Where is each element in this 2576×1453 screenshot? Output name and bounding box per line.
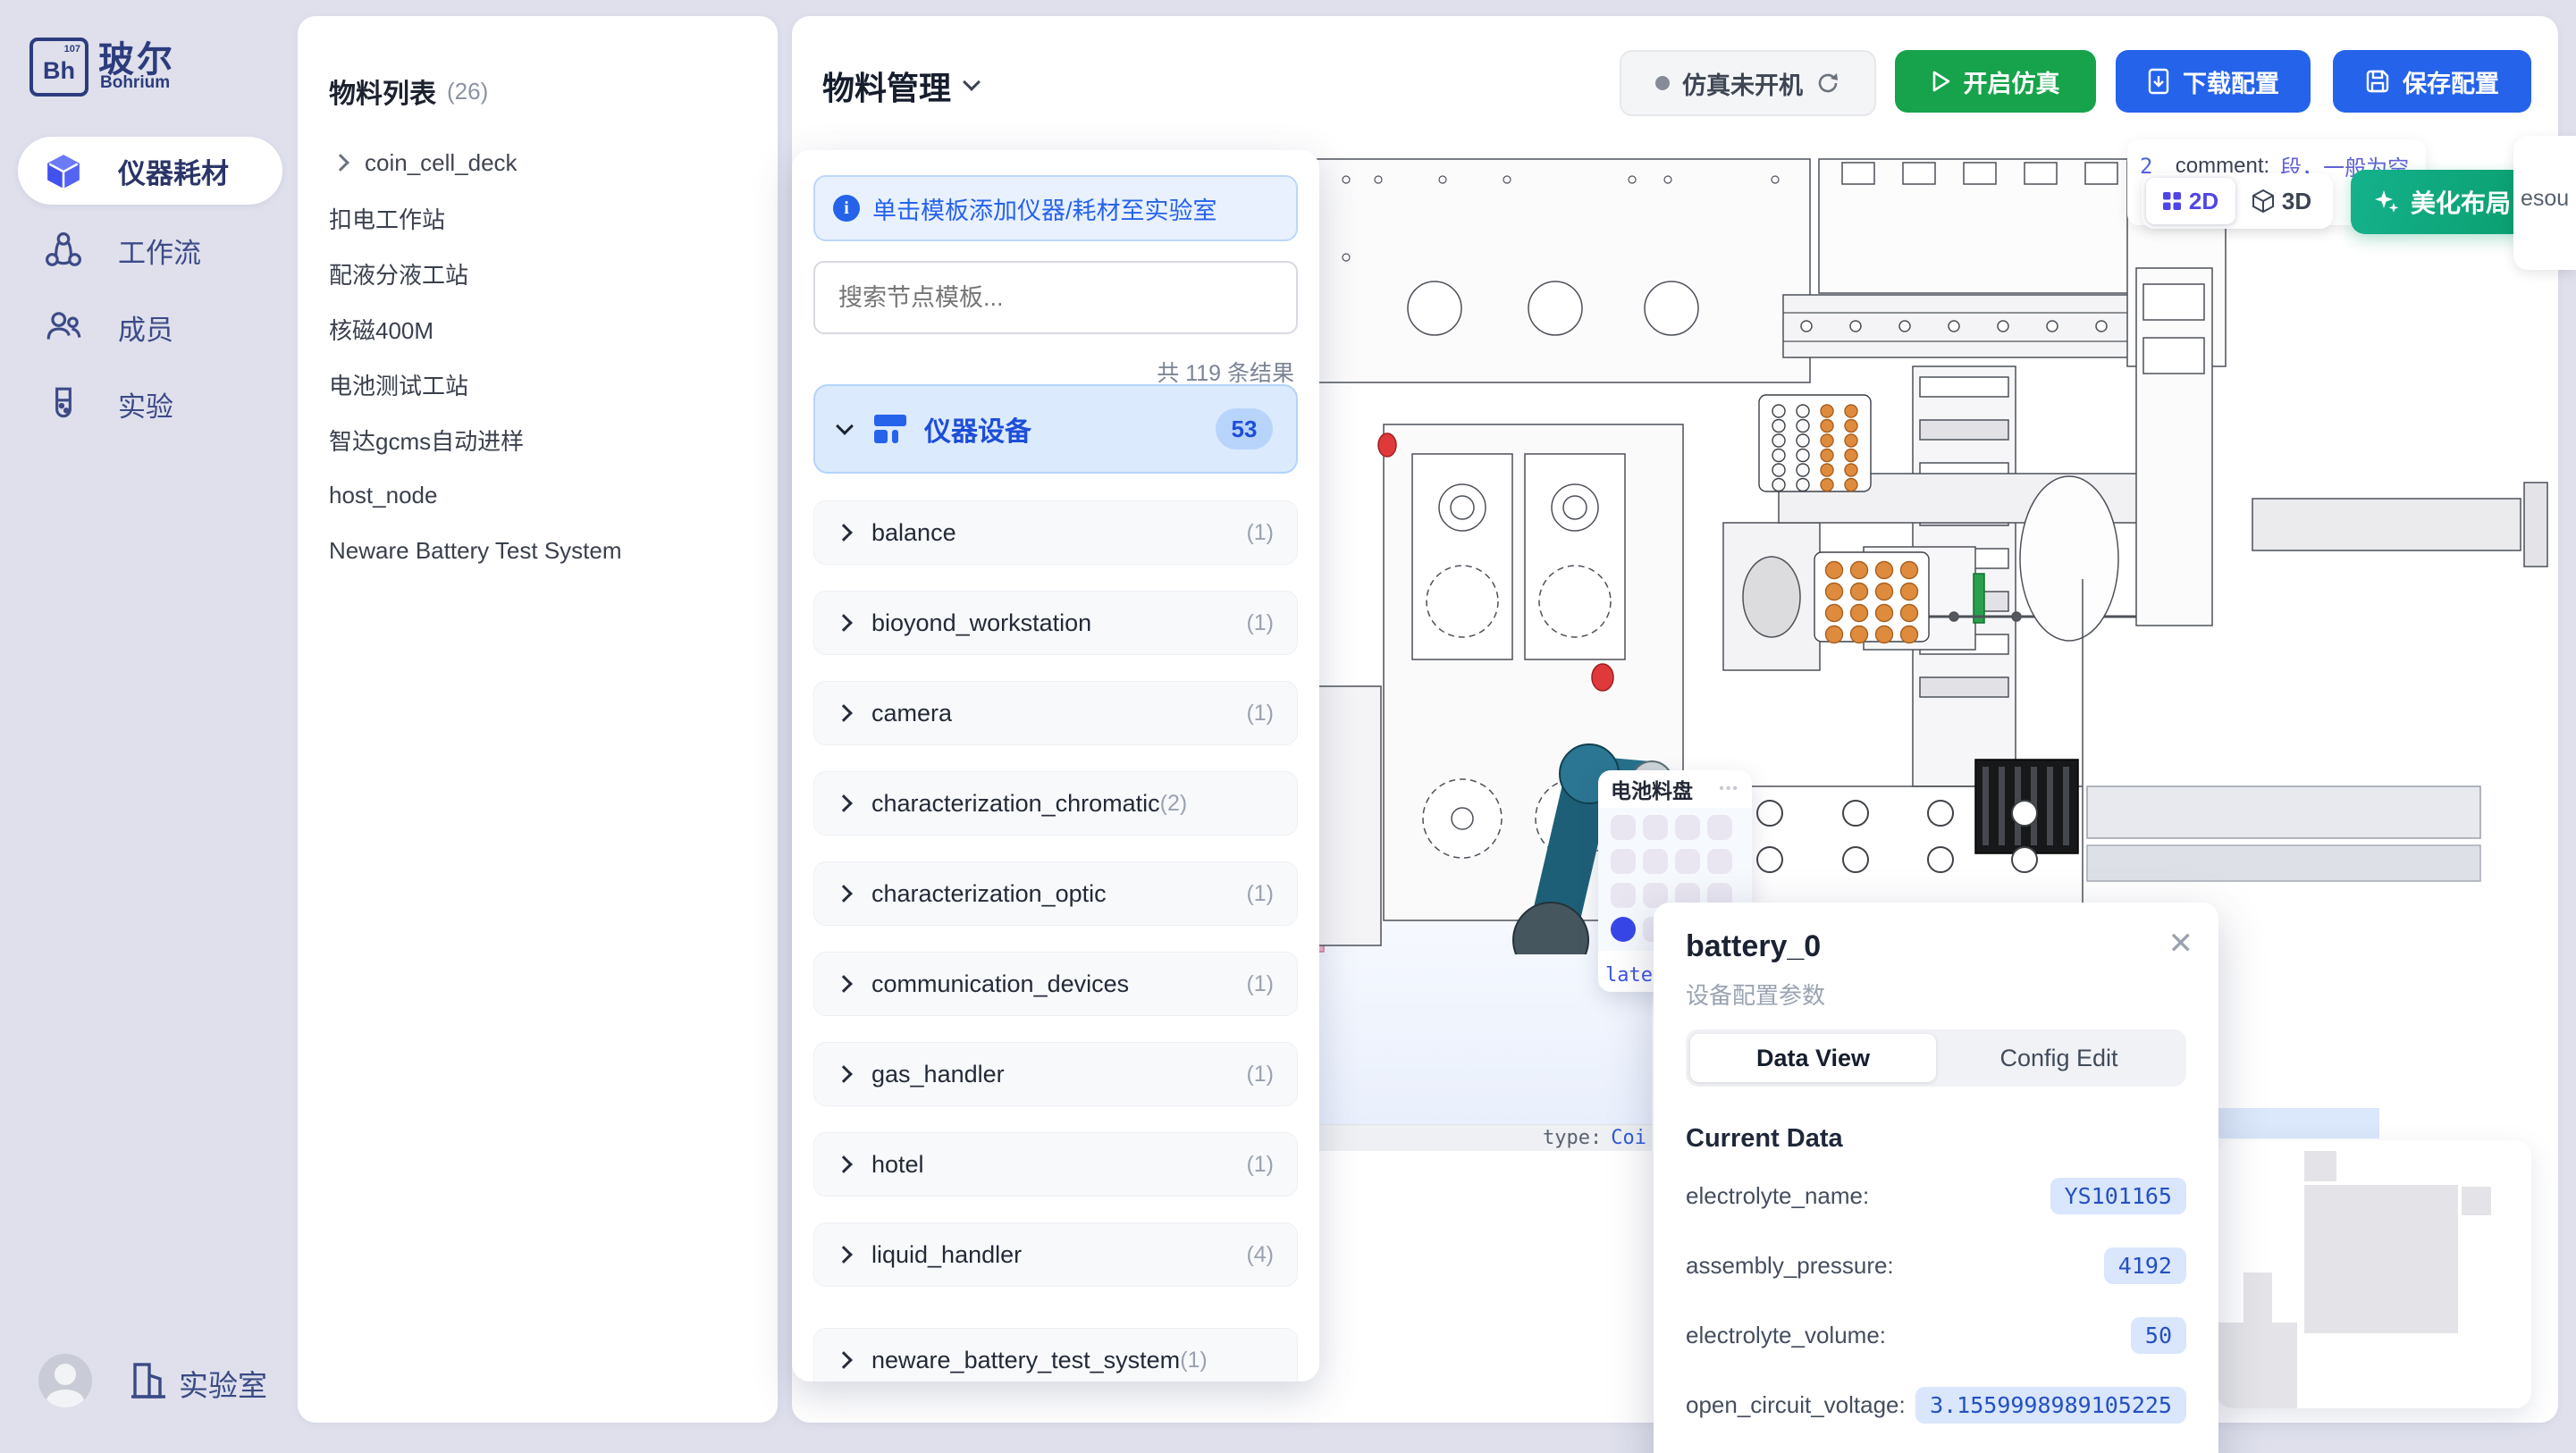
clipped-right-text: esou	[2521, 186, 2569, 212]
page-title: 物料管理	[822, 63, 951, 109]
plate-card-title: 电池料盘	[1611, 774, 1693, 804]
sim-status-label: 仿真未开机	[1682, 66, 1803, 101]
sidebar: Bh 107 玻尔 Bohrium 仪器耗材 工作流	[0, 0, 295, 1453]
plate-slot[interactable]	[1675, 815, 1700, 840]
test-tube-icon	[45, 385, 82, 423]
plate-slot[interactable]	[1707, 815, 1732, 840]
download-config-button[interactable]: 下载配置	[2116, 50, 2311, 113]
grid-2d-icon	[2163, 192, 2181, 210]
group-label: 仪器设备	[924, 409, 1031, 449]
sidebar-item-label: 工作流	[118, 231, 201, 271]
field-electrolyte-name: electrolyte_name: YS101165	[1686, 1176, 2186, 1215]
material-item-coin-cell-deck[interactable]: coin_cell_deck	[329, 135, 740, 190]
start-simulation-label: 开启仿真	[1964, 64, 2060, 99]
plate-slot[interactable]	[1643, 815, 1668, 840]
popup-fields: electrolyte_name: YS101165 assembly_pres…	[1686, 1176, 2186, 1453]
avatar-head	[55, 1364, 76, 1385]
search-input[interactable]	[813, 261, 1298, 334]
category-row-bioyond-workstation[interactable]: bioyond_workstation(1)	[813, 591, 1298, 655]
category-row-hotel[interactable]: hotel(1)	[813, 1132, 1298, 1197]
minimap-block	[2304, 1151, 2336, 1181]
tab-label: Config Edit	[1999, 1045, 2117, 1072]
popup-section-title: Current Data	[1686, 1124, 1843, 1154]
save-config-label: 保存配置	[2403, 64, 2499, 99]
minimap-block	[2218, 1323, 2297, 1408]
field-electrolyte-volume: electrolyte_volume: 50	[1686, 1315, 2186, 1355]
plate-slot[interactable]	[1611, 883, 1636, 908]
materials-title: 物料列表	[329, 71, 436, 111]
result-count: 共 119 条结果	[1157, 356, 1294, 388]
beautify-layout-label: 美化布局	[2411, 184, 2511, 220]
field-open-circuit-voltage: open_circuit_voltage: 3.1559998989105225	[1686, 1385, 2186, 1424]
lab-switcher[interactable]: 实验室	[179, 1362, 267, 1405]
toggle-3d[interactable]: 3D	[2235, 178, 2328, 224]
info-banner: i 单击模板添加仪器/耗材至实验室	[813, 175, 1298, 241]
category-row-balance[interactable]: balance(1)	[813, 500, 1298, 565]
workflow-icon	[45, 231, 82, 269]
sidebar-item-experiments[interactable]: 实验	[18, 375, 282, 433]
info-icon: i	[833, 195, 860, 222]
sidebar-item-label: 仪器耗材	[118, 151, 229, 191]
popup-tabs: Data View Config Edit	[1686, 1029, 2186, 1087]
tab-config-edit[interactable]: Config Edit	[1936, 1034, 2182, 1082]
sidebar-item-instruments[interactable]: 仪器耗材	[18, 137, 282, 205]
material-item-label: coin_cell_deck	[365, 149, 518, 177]
toggle-3d-label: 3D	[2282, 188, 2311, 215]
tab-label: Data View	[1756, 1045, 1870, 1072]
start-simulation-button[interactable]: 开启仿真	[1895, 50, 2096, 113]
category-row-neware-battery-test-system[interactable]: neware_battery_test_system(1)	[813, 1328, 1298, 1382]
logo-box-sup: 107	[64, 44, 80, 55]
plate-slot[interactable]	[1675, 849, 1700, 874]
materials-panel: 物料列表 (26) coin_cell_deck 扣电工作站 配液分液工站 核磁…	[298, 16, 778, 1423]
save-config-button[interactable]: 保存配置	[2333, 50, 2531, 113]
beautify-layout-button[interactable]: 美化布局	[2351, 170, 2533, 234]
download-icon	[2147, 68, 2170, 95]
field-value: 3.1559998989105225	[1915, 1387, 2186, 1424]
minimap[interactable]	[2217, 1140, 2531, 1408]
plate-slot-occupied[interactable]	[1611, 917, 1636, 942]
material-item-label: 配液分液工站	[329, 257, 468, 290]
field-label: assembly_pressure:	[1686, 1252, 1894, 1280]
chevron-down-icon	[836, 417, 854, 435]
sidebar-item-label: 实验	[118, 384, 173, 424]
material-item-label: host_node	[329, 482, 437, 509]
cube-3d-icon	[2252, 189, 2274, 213]
field-value: 50	[2131, 1317, 2186, 1354]
popup-subtitle: 设备配置参数	[1686, 978, 1825, 1011]
minimap-block	[2243, 1272, 2272, 1324]
field-assembly-pressure: assembly_pressure: 4192	[1686, 1246, 2186, 1285]
field-label: open_circuit_voltage:	[1686, 1391, 1906, 1419]
building-icon	[128, 1359, 169, 1402]
toggle-2d[interactable]: 2D	[2146, 178, 2235, 224]
sidebar-item-label: 成员	[118, 307, 173, 348]
material-item-label: 智达gcms自动进样	[329, 424, 524, 457]
popup-title: battery_0	[1686, 929, 1821, 964]
brand-subtitle: Bohrium	[100, 73, 170, 93]
tab-data-view[interactable]: Data View	[1690, 1034, 1936, 1082]
template-panel: i 单击模板添加仪器/耗材至实验室 共 119 条结果 仪器设备 53 bala…	[792, 150, 1319, 1382]
material-item-label: 核磁400M	[329, 313, 434, 346]
group-header-instruments[interactable]: 仪器设备 53	[813, 384, 1298, 474]
minimap-block	[2462, 1187, 2491, 1215]
category-row-characterization-optic[interactable]: characterization_optic(1)	[813, 861, 1298, 926]
view-mode-toggle: 2D 3D	[2142, 173, 2333, 229]
category-row-camera[interactable]: camera(1)	[813, 681, 1298, 745]
more-menu-icon[interactable]: •••	[1719, 781, 1739, 797]
device-config-popup: battery_0 ✕ 设备配置参数 Data View Config Edit…	[1654, 903, 2218, 1453]
plate-clipped-value: late	[1605, 964, 1653, 987]
cad-lab-drawing[interactable]	[1292, 150, 2553, 954]
node-type-value: Coi	[1611, 1127, 1646, 1149]
device-grid-icon	[874, 415, 906, 443]
expand-chevron-icon[interactable]	[332, 154, 349, 172]
field-label: electrolyte_name:	[1686, 1182, 1869, 1210]
field-value: 4192	[2104, 1247, 2186, 1284]
material-item[interactable]: 核磁400M	[329, 301, 740, 357]
materials-count: (26)	[447, 78, 488, 105]
close-icon[interactable]: ✕	[2168, 926, 2194, 962]
canvas-slot-bar	[2217, 1108, 2379, 1138]
material-item[interactable]: 电池测试工站	[329, 357, 740, 412]
avatar-body	[46, 1390, 84, 1407]
refresh-icon[interactable]	[1815, 71, 1840, 96]
brand-logo[interactable]: Bh 107	[29, 38, 88, 97]
save-icon	[2365, 69, 2390, 94]
toggle-2d-label: 2D	[2189, 188, 2218, 215]
download-config-label: 下载配置	[2183, 64, 2279, 99]
plate-slot[interactable]	[1707, 849, 1732, 874]
logo-box-text: Bh	[43, 57, 75, 85]
material-item[interactable]: 智达gcms自动进样	[329, 412, 740, 467]
group-badge: 53	[1216, 408, 1273, 449]
material-item[interactable]: host_node	[329, 467, 740, 523]
material-item-label: 电池测试工站	[329, 368, 468, 401]
field-label: electrolyte_volume:	[1686, 1322, 1886, 1349]
sidebar-item-members[interactable]: 成员	[18, 298, 282, 356]
vial-rack-a	[1759, 395, 1871, 491]
sparkles-icon	[2373, 189, 2400, 215]
material-item-label: Neware Battery Test System	[329, 537, 622, 565]
category-row-communication-devices[interactable]: communication_devices(1)	[813, 952, 1298, 1016]
play-icon	[1932, 71, 1951, 92]
info-banner-text: 单击模板添加仪器/耗材至实验室	[872, 191, 1217, 226]
plate-slot[interactable]	[1643, 849, 1668, 874]
members-icon	[45, 308, 82, 346]
plate-slot[interactable]	[1611, 849, 1636, 874]
vial-rack-b	[1814, 552, 1929, 643]
category-row-liquid-handler[interactable]: liquid_handler(4)	[813, 1222, 1298, 1287]
material-item[interactable]: 扣电工作站	[329, 190, 740, 246]
material-item[interactable]: Neware Battery Test System	[329, 523, 740, 578]
material-item-label: 扣电工作站	[329, 202, 445, 235]
sim-status-pill[interactable]: 仿真未开机	[1620, 50, 1876, 116]
category-row-gas-handler[interactable]: gas_handler(1)	[813, 1042, 1298, 1106]
plate-slot[interactable]	[1611, 815, 1636, 840]
cube-icon	[45, 152, 82, 189]
node-type-key: type:	[1543, 1127, 1602, 1149]
clipped-right-card[interactable]: esou	[2513, 136, 2576, 270]
avatar[interactable]	[38, 1354, 92, 1407]
material-item[interactable]: 配液分液工站	[329, 246, 740, 301]
category-row-characterization-chromatic[interactable]: characterization_chromatic(2)	[813, 771, 1298, 836]
field-value: YS101165	[2050, 1178, 2186, 1214]
minimap-block	[2304, 1185, 2458, 1333]
chevron-down-icon[interactable]	[963, 73, 981, 91]
status-dot	[1655, 76, 1670, 90]
app-root: Bh 107 玻尔 Bohrium 仪器耗材 工作流	[0, 0, 2576, 1453]
sidebar-item-workflow[interactable]: 工作流	[18, 222, 282, 279]
